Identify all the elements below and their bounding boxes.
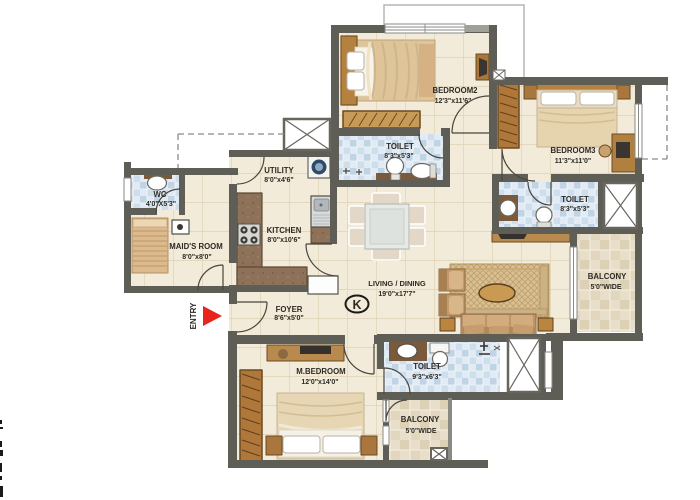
- svg-text:BEDROOM3: BEDROOM3: [550, 146, 596, 155]
- svg-text:9'3"x6'3": 9'3"x6'3": [412, 374, 441, 381]
- svg-text:UTILITY: UTILITY: [264, 166, 294, 175]
- svg-text:8'3"x5'3": 8'3"x5'3": [560, 206, 589, 213]
- svg-text:4'0"X5'3": 4'0"X5'3": [146, 201, 176, 208]
- svg-text:5'0"WIDE: 5'0"WIDE: [405, 428, 436, 435]
- svg-text:5'0"WIDE: 5'0"WIDE: [590, 284, 621, 291]
- svg-text:M.BEDROOM: M.BEDROOM: [296, 367, 345, 376]
- svg-text:TOILET: TOILET: [386, 142, 414, 151]
- svg-text:WC: WC: [154, 190, 167, 199]
- svg-text:TOILET: TOILET: [413, 362, 441, 371]
- svg-text:8'3"x5'3": 8'3"x5'3": [384, 153, 413, 160]
- svg-text:19'0"x17'7": 19'0"x17'7": [378, 291, 415, 298]
- svg-text:K: K: [352, 298, 361, 312]
- svg-text:FOYER: FOYER: [276, 305, 303, 314]
- svg-text:12'0"x14'0": 12'0"x14'0": [301, 379, 338, 386]
- svg-text:8'6"x5'0": 8'6"x5'0": [274, 315, 303, 322]
- svg-text:BALCONY: BALCONY: [401, 415, 440, 424]
- svg-text:BALCONY: BALCONY: [588, 272, 627, 281]
- svg-text:LIVING / DINING: LIVING / DINING: [368, 279, 426, 288]
- svg-text:8'0"x4'6": 8'0"x4'6": [264, 177, 293, 184]
- svg-text:ENTRY: ENTRY: [189, 302, 198, 329]
- svg-text:KITCHEN: KITCHEN: [267, 226, 302, 235]
- svg-text:8'0"x10'6": 8'0"x10'6": [267, 237, 300, 244]
- svg-text:MAID'S ROOM: MAID'S ROOM: [169, 242, 222, 251]
- svg-text:BEDROOM2: BEDROOM2: [432, 86, 478, 95]
- svg-text:TOILET: TOILET: [561, 195, 589, 204]
- svg-text:8'0"x8'0": 8'0"x8'0": [182, 254, 211, 261]
- svg-text:11'3"x11'0": 11'3"x11'0": [555, 158, 591, 165]
- svg-text:12'3"x11'6": 12'3"x11'6": [435, 98, 472, 105]
